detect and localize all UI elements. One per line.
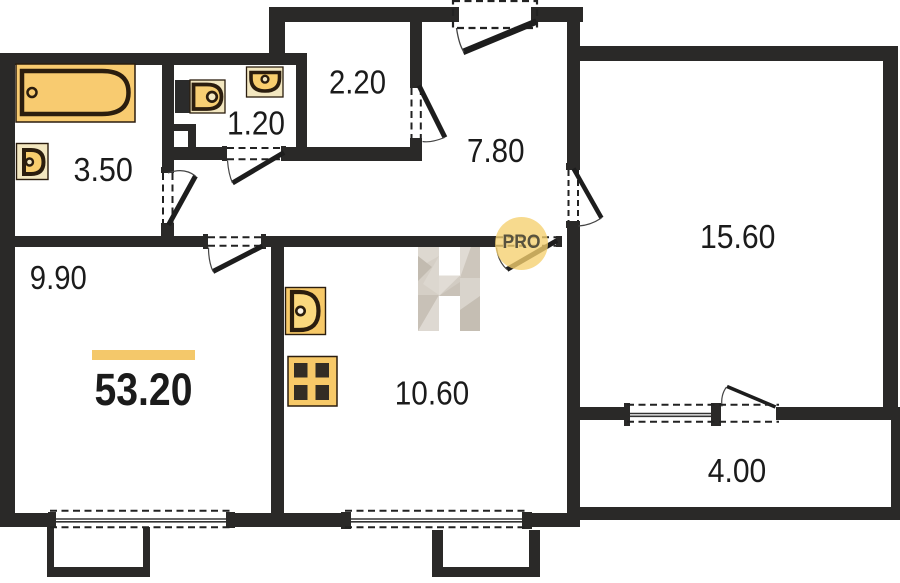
svg-text:2.20: 2.20 xyxy=(329,64,386,101)
svg-text:53.20: 53.20 xyxy=(95,364,193,415)
svg-text:7.80: 7.80 xyxy=(467,132,525,169)
svg-text:9.90: 9.90 xyxy=(30,259,87,296)
svg-text:4.00: 4.00 xyxy=(708,452,767,489)
svg-text:10.60: 10.60 xyxy=(395,375,470,412)
svg-text:15.60: 15.60 xyxy=(700,218,776,255)
svg-text:3.50: 3.50 xyxy=(73,151,133,188)
svg-text:PRO: PRO xyxy=(503,232,541,253)
svg-text:1.20: 1.20 xyxy=(227,105,285,142)
